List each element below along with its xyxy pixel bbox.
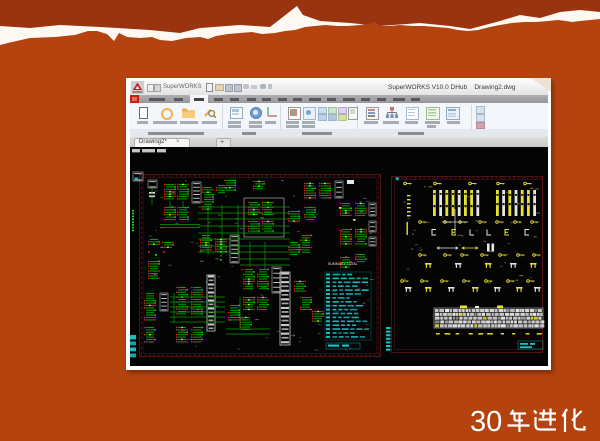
svg-text:30: 30 bbox=[470, 406, 502, 436]
svg-text:SUMMARY TOTAL: SUMMARY TOTAL bbox=[328, 262, 358, 266]
